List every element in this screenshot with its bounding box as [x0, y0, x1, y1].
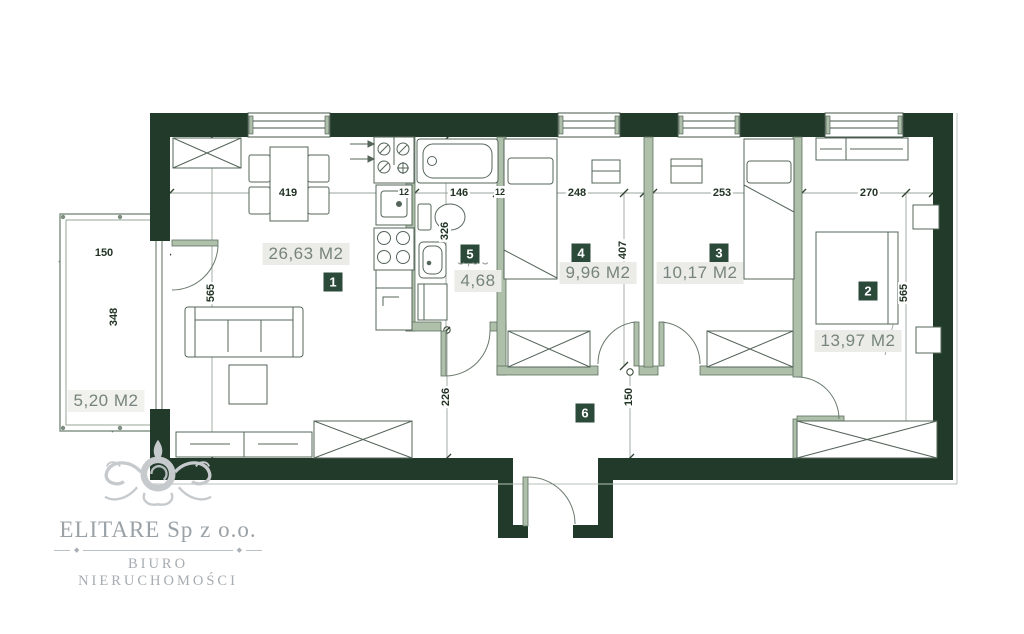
bed-room2	[816, 232, 898, 324]
bed-room3	[744, 139, 794, 279]
logo-tagline: BIURO NIERUCHOMOŚCI	[48, 556, 268, 590]
wardrobe-room1-bottom	[314, 421, 412, 458]
dim-room1-height: 565	[205, 282, 217, 304]
room-2-area-label: 13,97 M2	[815, 330, 902, 352]
room2-door	[797, 377, 844, 421]
nightstand-room2-bottom	[916, 327, 941, 353]
room-2-badge: 2	[859, 282, 878, 301]
dim-balcony-width: 150	[93, 247, 115, 259]
dim-room3-width: 253	[711, 187, 733, 199]
dim-wall-a: 12	[398, 186, 410, 198]
room-5-badge: 5	[461, 245, 480, 264]
bathroom-door	[441, 331, 490, 376]
dresser-room2	[816, 138, 908, 160]
desk-room3	[671, 159, 702, 183]
dim-balcony-depth: 348	[108, 306, 120, 328]
room-1-area-label: 26,63 M2	[263, 243, 350, 265]
kitchen-counter	[376, 270, 412, 288]
dim-room2-height: 565	[898, 282, 910, 304]
washing-machine	[418, 284, 447, 320]
dim-bath-width: 146	[448, 187, 470, 199]
dim-room4-height: 407	[617, 239, 629, 261]
sofa	[185, 307, 303, 357]
logo-ornament	[91, 438, 225, 510]
window-room1	[248, 113, 330, 137]
agency-logo: ELITARE Sp z o.o. ◆ ◆ BIURO NIERUCHOMOŚC…	[48, 438, 268, 590]
wardrobe-room4	[508, 331, 590, 367]
divider-diamond-left: ◆	[70, 546, 83, 554]
window-room2	[825, 113, 903, 137]
room-5-hidden-area-text: 5,96	[457, 263, 499, 269]
partitions	[406, 137, 802, 458]
window-room3	[678, 113, 740, 137]
dining-table-chairs	[249, 147, 329, 221]
furniture	[173, 137, 941, 458]
floor-plan-page: 1 2 3 4 5 6 26,63 M2 13,97 M2 10,17 M2 9…	[0, 0, 1024, 634]
radiator-room4	[592, 160, 620, 183]
room-6-badge: 6	[576, 404, 595, 423]
room-5-hidden-area-fragment: 5,96	[457, 263, 499, 270]
room3-door	[659, 322, 700, 366]
room-3-area-label: 10,17 M2	[657, 262, 744, 284]
washbasin	[419, 242, 446, 278]
wardrobe-room2	[797, 421, 937, 458]
kitchen-stove	[374, 228, 414, 270]
dim-wall-b: 12	[494, 186, 506, 198]
bathtub	[417, 139, 498, 183]
dim-bath-height: 326	[439, 220, 451, 242]
room4-door	[598, 322, 639, 366]
dim-hall-depth: 226	[440, 386, 452, 408]
dim-room4-width: 248	[566, 187, 588, 199]
bed-room4	[504, 139, 557, 279]
logo-divider: ◆ ◆	[54, 546, 262, 554]
room-1-badge: 1	[324, 273, 343, 292]
balcony-glazed-door-window	[150, 241, 170, 409]
room-4-area-label: 9,96 M2	[560, 262, 637, 284]
balcony-area-label: 5,20 M2	[68, 390, 145, 412]
dim-room2-width: 270	[858, 187, 880, 199]
dim-room1-width: 419	[277, 187, 299, 199]
kitchen-shaft	[374, 137, 414, 183]
nightstand-room2-top	[913, 205, 939, 229]
coffee-table	[229, 365, 267, 404]
divider-diamond-right: ◆	[233, 546, 246, 554]
room-4-badge: 4	[572, 244, 591, 263]
room-3-badge: 3	[710, 244, 729, 263]
logo-company-name: ELITARE Sp z o.o.	[48, 517, 268, 543]
room-5-area-label: 4,68	[454, 270, 501, 292]
kitchen-cabinet	[376, 288, 412, 330]
wardrobe-room3	[707, 331, 793, 367]
wardrobe-room1-top	[173, 138, 241, 168]
dim-hall-width: 150	[623, 386, 635, 408]
window-room4	[558, 113, 620, 137]
